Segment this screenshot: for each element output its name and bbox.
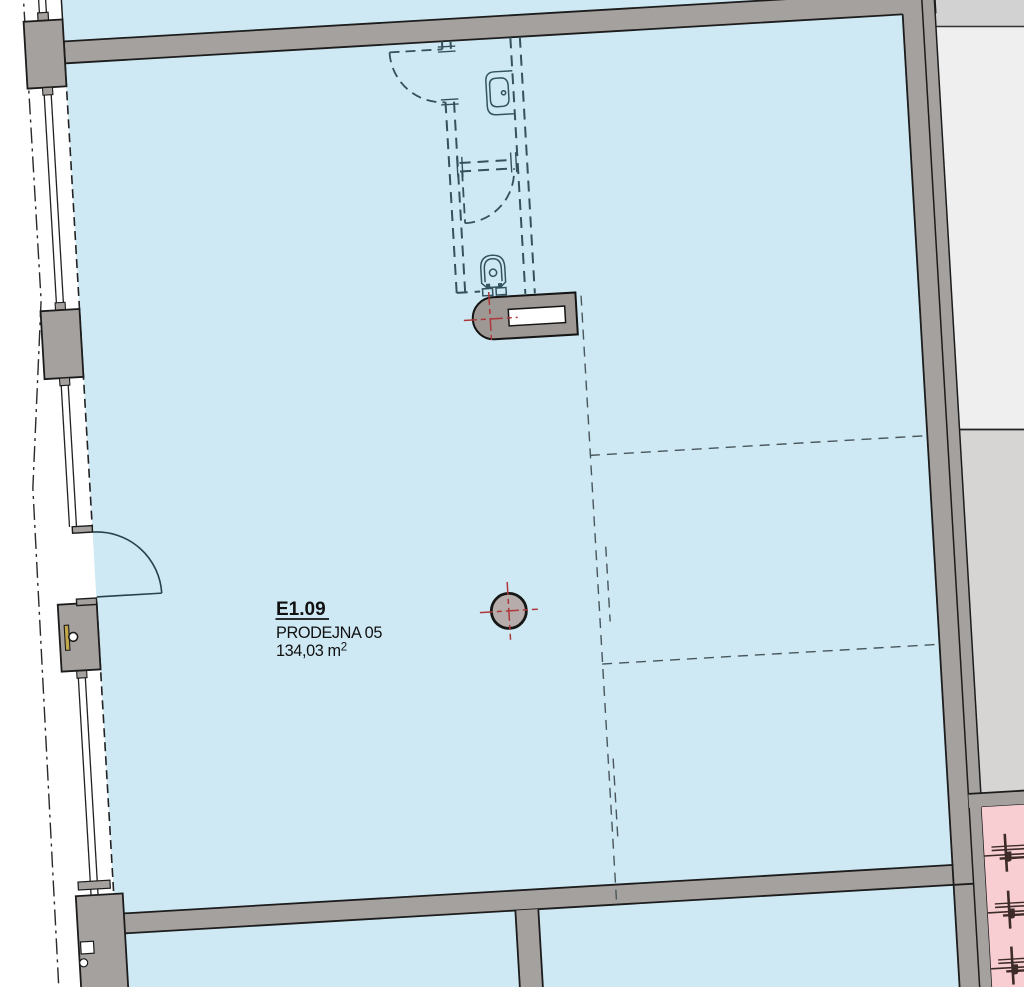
svg-text:PRODEJNA 05: PRODEJNA 05 [276,624,382,642]
svg-text:E1.09: E1.09 [276,599,326,620]
svg-text:134,03 m2: 134,03 m2 [276,642,347,661]
